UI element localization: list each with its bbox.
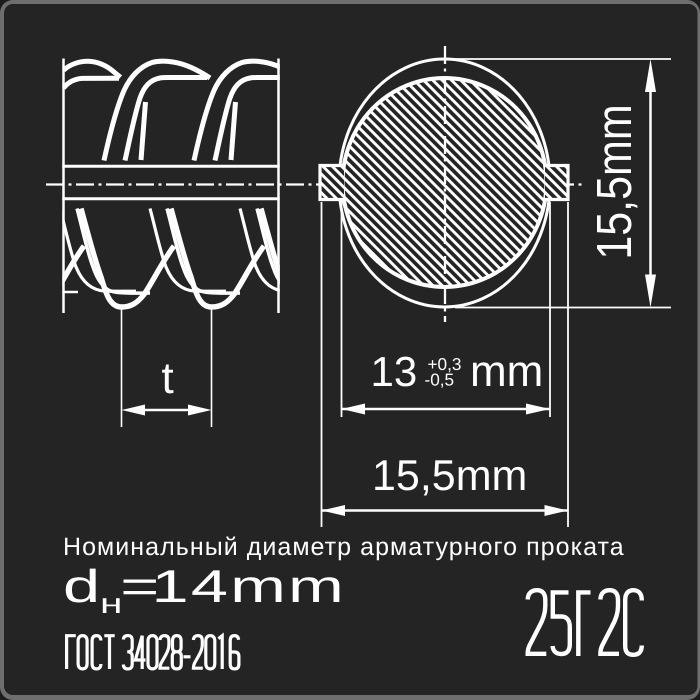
svg-text:Номинальный диаметр арматурног: Номинальный диаметр арматурного проката [63, 533, 625, 561]
svg-text:13: 13 [371, 348, 418, 395]
svg-text:н: н [100, 588, 122, 619]
svg-text:-0,5: -0,5 [425, 370, 455, 390]
svg-text:d: d [63, 560, 100, 612]
svg-text:t: t [162, 354, 174, 403]
svg-text:15,5mm: 15,5mm [587, 104, 642, 259]
svg-text:14mm: 14mm [151, 560, 346, 612]
svg-text:mm: mm [470, 347, 543, 396]
svg-text:15,5mm: 15,5mm [372, 452, 527, 500]
